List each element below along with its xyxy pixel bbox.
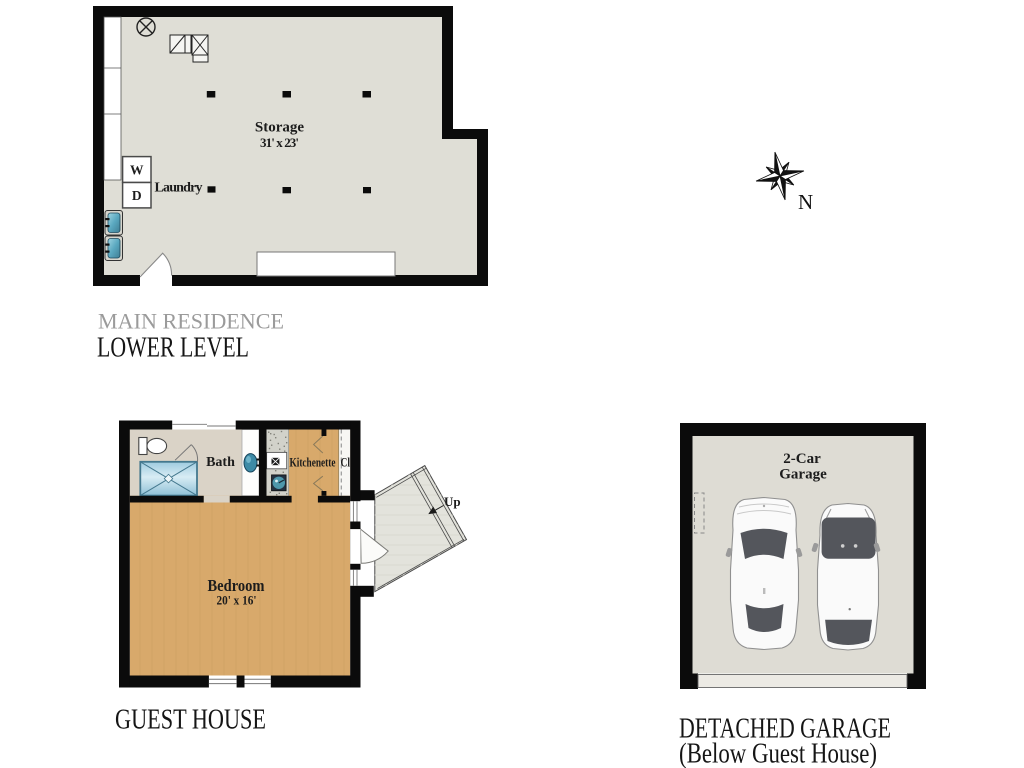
svg-text:Up: Up bbox=[444, 494, 461, 509]
svg-text:MAIN RESIDENCE: MAIN RESIDENCE bbox=[98, 309, 284, 334]
svg-text:W: W bbox=[130, 163, 144, 178]
svg-text:Garage: Garage bbox=[779, 467, 827, 483]
svg-text:2-Car: 2-Car bbox=[783, 451, 821, 467]
svg-text:Cl: Cl bbox=[341, 454, 351, 469]
svg-text:(Below Guest House): (Below Guest House) bbox=[679, 738, 877, 768]
svg-text:20' x 16': 20' x 16' bbox=[217, 593, 257, 608]
svg-text:D: D bbox=[132, 188, 142, 203]
svg-text:Laundry: Laundry bbox=[155, 181, 203, 196]
svg-text:GUEST HOUSE: GUEST HOUSE bbox=[115, 703, 266, 735]
svg-text:N: N bbox=[798, 190, 813, 214]
svg-text:Storage: Storage bbox=[255, 120, 304, 136]
svg-text:31' x 23': 31' x 23' bbox=[260, 135, 299, 150]
svg-text:LOWER LEVEL: LOWER LEVEL bbox=[97, 332, 249, 364]
svg-text:Bath: Bath bbox=[206, 455, 235, 470]
svg-text:Kitchenette: Kitchenette bbox=[290, 454, 336, 469]
